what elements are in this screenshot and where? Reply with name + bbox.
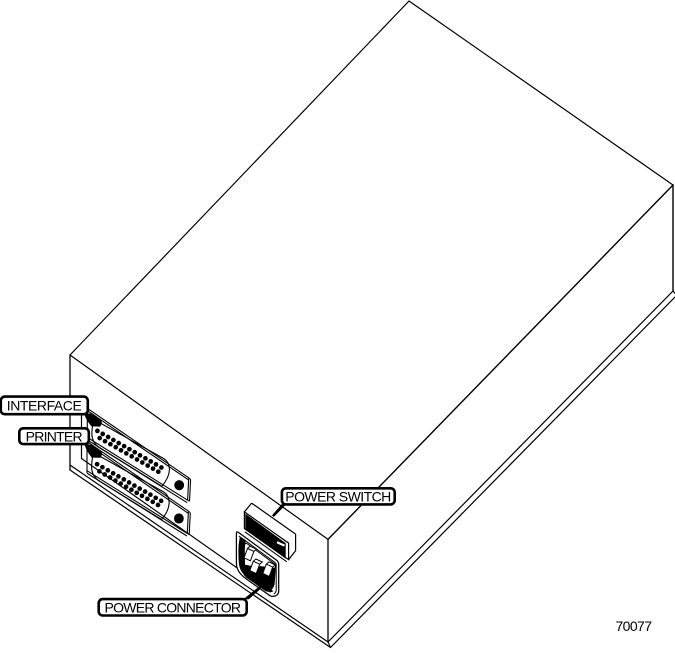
svg-text:PRINTER: PRINTER	[26, 428, 83, 444]
svg-text:POWER SWITCH: POWER SWITCH	[285, 489, 391, 505]
svg-text:70077: 70077	[616, 618, 653, 634]
svg-text:INTERFACE: INTERFACE	[7, 398, 82, 414]
svg-text:POWER CONNECTOR: POWER CONNECTOR	[105, 599, 242, 615]
